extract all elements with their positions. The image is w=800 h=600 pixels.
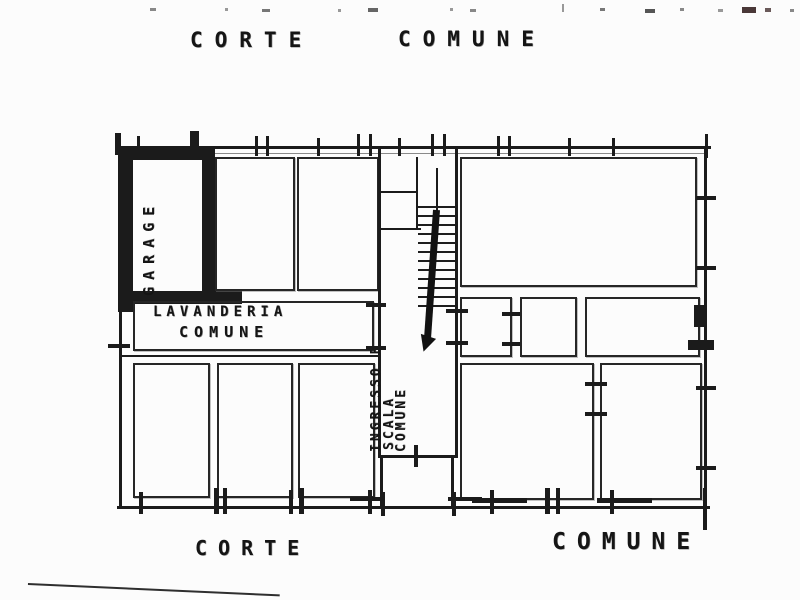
- wall-tick: [703, 488, 707, 530]
- wall-tick: [448, 497, 482, 501]
- wall-tick: [357, 134, 360, 156]
- room: [585, 297, 700, 357]
- wall-tick: [414, 445, 418, 467]
- garage-wall-right: [202, 148, 215, 296]
- wall-tick: [705, 134, 708, 158]
- wall-tick: [556, 488, 560, 514]
- wall-tick: [369, 134, 372, 156]
- wall-tick: [610, 490, 614, 514]
- wall-tick: [366, 346, 386, 350]
- threshold-mark: [597, 498, 652, 503]
- vestibule-line: [381, 228, 421, 230]
- room: [298, 363, 375, 498]
- room: [600, 363, 702, 500]
- wall-tick: [452, 492, 456, 516]
- wall-tick: [381, 492, 385, 516]
- wall-tick: [696, 386, 716, 390]
- room: [460, 157, 697, 287]
- room: [520, 297, 577, 357]
- wall-tick: [139, 492, 143, 514]
- wall-tick: [289, 490, 293, 514]
- wall-tick: [350, 497, 380, 501]
- courtyard-label-bottom-left: CORTE: [195, 536, 310, 560]
- room: [460, 297, 512, 357]
- garage-wall-left: [118, 146, 133, 312]
- wall-tick: [696, 466, 716, 470]
- garage-label: GARAGE: [139, 200, 159, 296]
- outer-wall-right: [704, 146, 707, 512]
- door-mark: [688, 340, 714, 350]
- wall-tick: [366, 303, 386, 307]
- laundry-label-line2: COMUNE: [179, 323, 269, 341]
- wall-tick: [398, 138, 401, 156]
- outer-boundary-bottom: [117, 506, 710, 509]
- stair-arrow-head-icon: [416, 334, 436, 354]
- courtyard-label-bottom-right: COMUNE: [552, 529, 701, 555]
- wall-tick: [612, 138, 615, 156]
- vestibule-line: [381, 191, 418, 193]
- wall-tick: [137, 136, 140, 156]
- wall-tick: [696, 196, 716, 200]
- wall-tick: [696, 266, 716, 270]
- outer-wall-top-inner-line: [215, 153, 707, 154]
- room: [215, 157, 295, 291]
- wall-tick: [317, 138, 320, 156]
- wall-tick: [490, 490, 494, 514]
- wall-tick: [266, 136, 269, 156]
- outer-wall-left: [119, 310, 122, 508]
- interior-wall: [120, 355, 378, 357]
- wall-tick: [545, 488, 550, 514]
- wall-tick: [443, 134, 446, 156]
- wall-tick: [255, 136, 258, 156]
- wall-tick: [299, 488, 304, 514]
- wall-tick: [508, 136, 511, 156]
- room: [133, 363, 210, 498]
- wall-tick: [368, 490, 372, 514]
- wall-tick: [115, 133, 121, 155]
- room: [460, 363, 594, 500]
- wall-tick: [431, 134, 434, 156]
- wall-tick: [108, 344, 130, 348]
- door-mark: [694, 305, 706, 327]
- wall-tick: [568, 138, 571, 156]
- room: [217, 363, 293, 498]
- wall-tick: [585, 382, 607, 386]
- wall-tick: [585, 412, 607, 416]
- wall-tick: [190, 131, 199, 159]
- scanned-floor-plan-sheet: CORTE COMUNE GARAGE LAVANDERIA COMUNE: [0, 0, 800, 600]
- wall-tick: [446, 309, 468, 313]
- garage-wall-top: [118, 146, 215, 160]
- room: [297, 157, 379, 291]
- wall-tick: [214, 488, 219, 514]
- wall-tick: [497, 136, 500, 156]
- wall-tick: [502, 312, 520, 316]
- entrance-label-line3: COMUNE: [395, 387, 409, 452]
- floor-plan: GARAGE LAVANDERIA COMUNE INGRESSO E SCAL…: [0, 0, 800, 600]
- wall-tick: [502, 342, 520, 346]
- stairwell-wall-right: [455, 146, 458, 458]
- wall-tick: [446, 341, 468, 345]
- wall-tick: [223, 488, 227, 514]
- laundry-label-line1: LAVANDERIA: [153, 304, 287, 320]
